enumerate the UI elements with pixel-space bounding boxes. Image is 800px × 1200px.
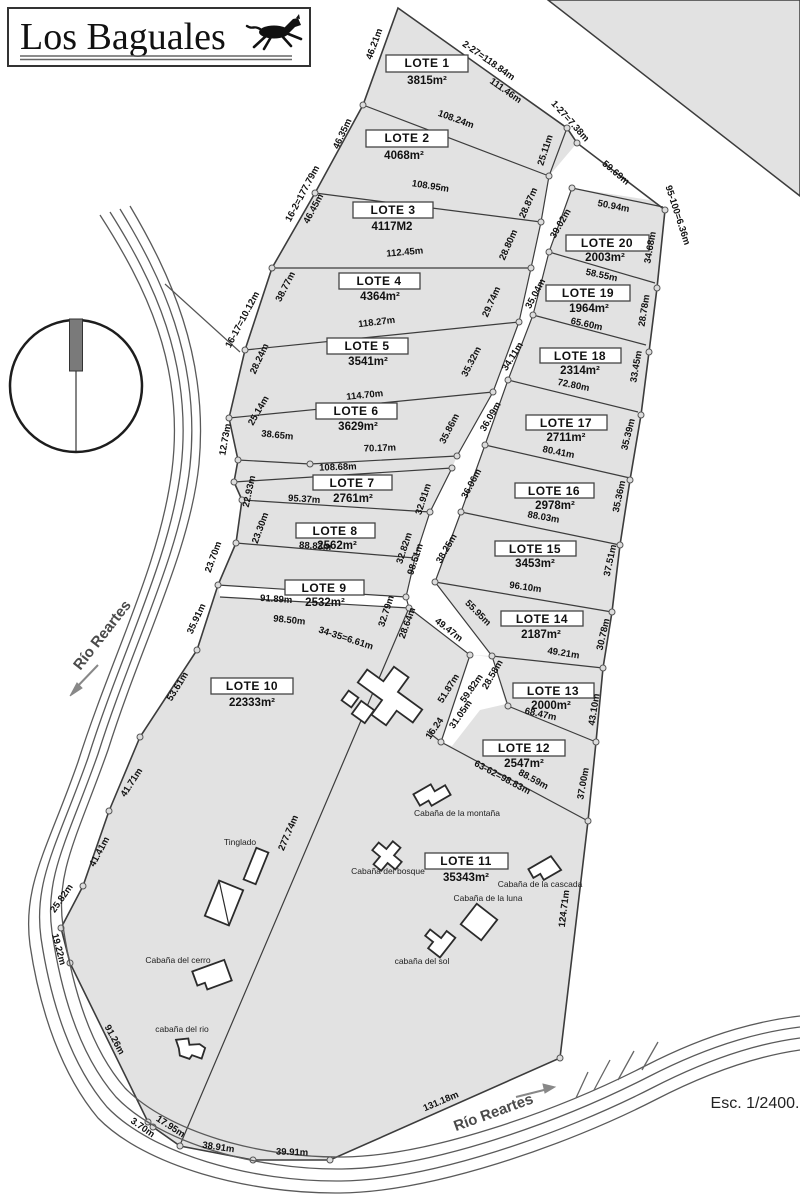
dimension-label: 70.17m [364,442,397,454]
lot-label: LOTE 18 [554,349,606,363]
plat-map-page: Los Baguales LOTE 13815m² LOTE 24068m² L… [0,0,800,1200]
dimension-label: 12.73m [217,423,233,457]
lot-area: 1964m² [569,303,609,315]
lot-area: 2532m² [305,597,345,609]
arrow-right-icon [516,1084,555,1097]
lot-label: LOTE 11 [440,854,492,868]
lot-label: LOTE 7 [329,476,374,490]
cabin-label: Cabaña del bosque [351,866,425,876]
lot-area: 3541m² [348,356,388,368]
lot-area: 3629m² [338,421,378,433]
lot-label: LOTE 1 [404,56,449,70]
lot-label: LOTE 8 [312,524,357,538]
dimension-label: 108.68m [319,461,357,473]
north-compass [10,319,142,452]
lot-label: LOTE 3 [370,203,415,217]
dimension-label: 88.83m [299,540,332,553]
cabin-label: Cabaña de la montaña [414,808,500,818]
lot-label: LOTE 5 [344,339,389,353]
page-title: Los Baguales [20,16,226,58]
cabin-label: Tinglado [224,837,257,847]
dimension-label: 23.70m [203,540,224,574]
cabin-label: Cabaña del cerro [145,955,210,965]
lot-label: LOTE 14 [516,612,568,626]
lot-area: 4364m² [360,291,400,303]
river-name: Río Reartes [70,597,135,673]
lot-area: 2711m² [546,432,585,444]
lot-area: 3815m² [407,75,447,87]
map-scale-label: Esc. 1/2400. [711,1095,800,1112]
lot-label: LOTE 6 [333,404,378,418]
dimension-label: 91.89m [260,593,293,606]
river-upper-label: Río Reartes [70,597,135,696]
lot-label: LOTE 19 [562,286,614,300]
lot-area: 2761m² [333,493,373,505]
compass-needle [70,319,83,371]
lot-area: 2978m² [535,500,575,512]
lot-area: 2314m² [560,365,600,377]
lot-area: 35343m² [443,872,489,884]
lot-label: LOTE 4 [356,274,401,288]
lot-label: LOTE 16 [528,484,580,498]
lot-label: LOTE 12 [498,741,550,755]
lot-area: 4117M2 [372,221,413,233]
river-ford-marks [576,1042,658,1098]
lot-area: 3453m² [515,558,555,570]
cabin-label: cabaña del sol [395,956,450,966]
map-canvas: Los Baguales LOTE 13815m² LOTE 24068m² L… [0,0,800,1200]
dimension-label: 95.37m [288,493,321,506]
title-box: Los Baguales [8,8,310,66]
lot-label: LOTE 17 [540,416,592,430]
lot-label: LOTE 2 [384,131,429,145]
cabin-label: cabaña del rio [155,1024,209,1034]
lot-label: LOTE 15 [509,542,561,556]
dimension-label: 39.91m [276,1146,309,1158]
cabin-label: Cabaña de la cascada [498,879,583,889]
lot-area: 2187m² [521,629,561,641]
dimension-label: 95-100=6.36m [663,184,693,246]
lot-label: LOTE 9 [301,581,346,595]
cabin-label: Cabaña de la luna [453,893,522,903]
lot-label: LOTE 13 [527,684,579,698]
lot-area: 2003m² [585,252,625,264]
lot-area: 4068m² [384,150,424,162]
lot-label: LOTE 20 [581,236,633,250]
lot-area: 22333m² [229,697,275,709]
lot-label: LOTE 10 [226,679,278,693]
